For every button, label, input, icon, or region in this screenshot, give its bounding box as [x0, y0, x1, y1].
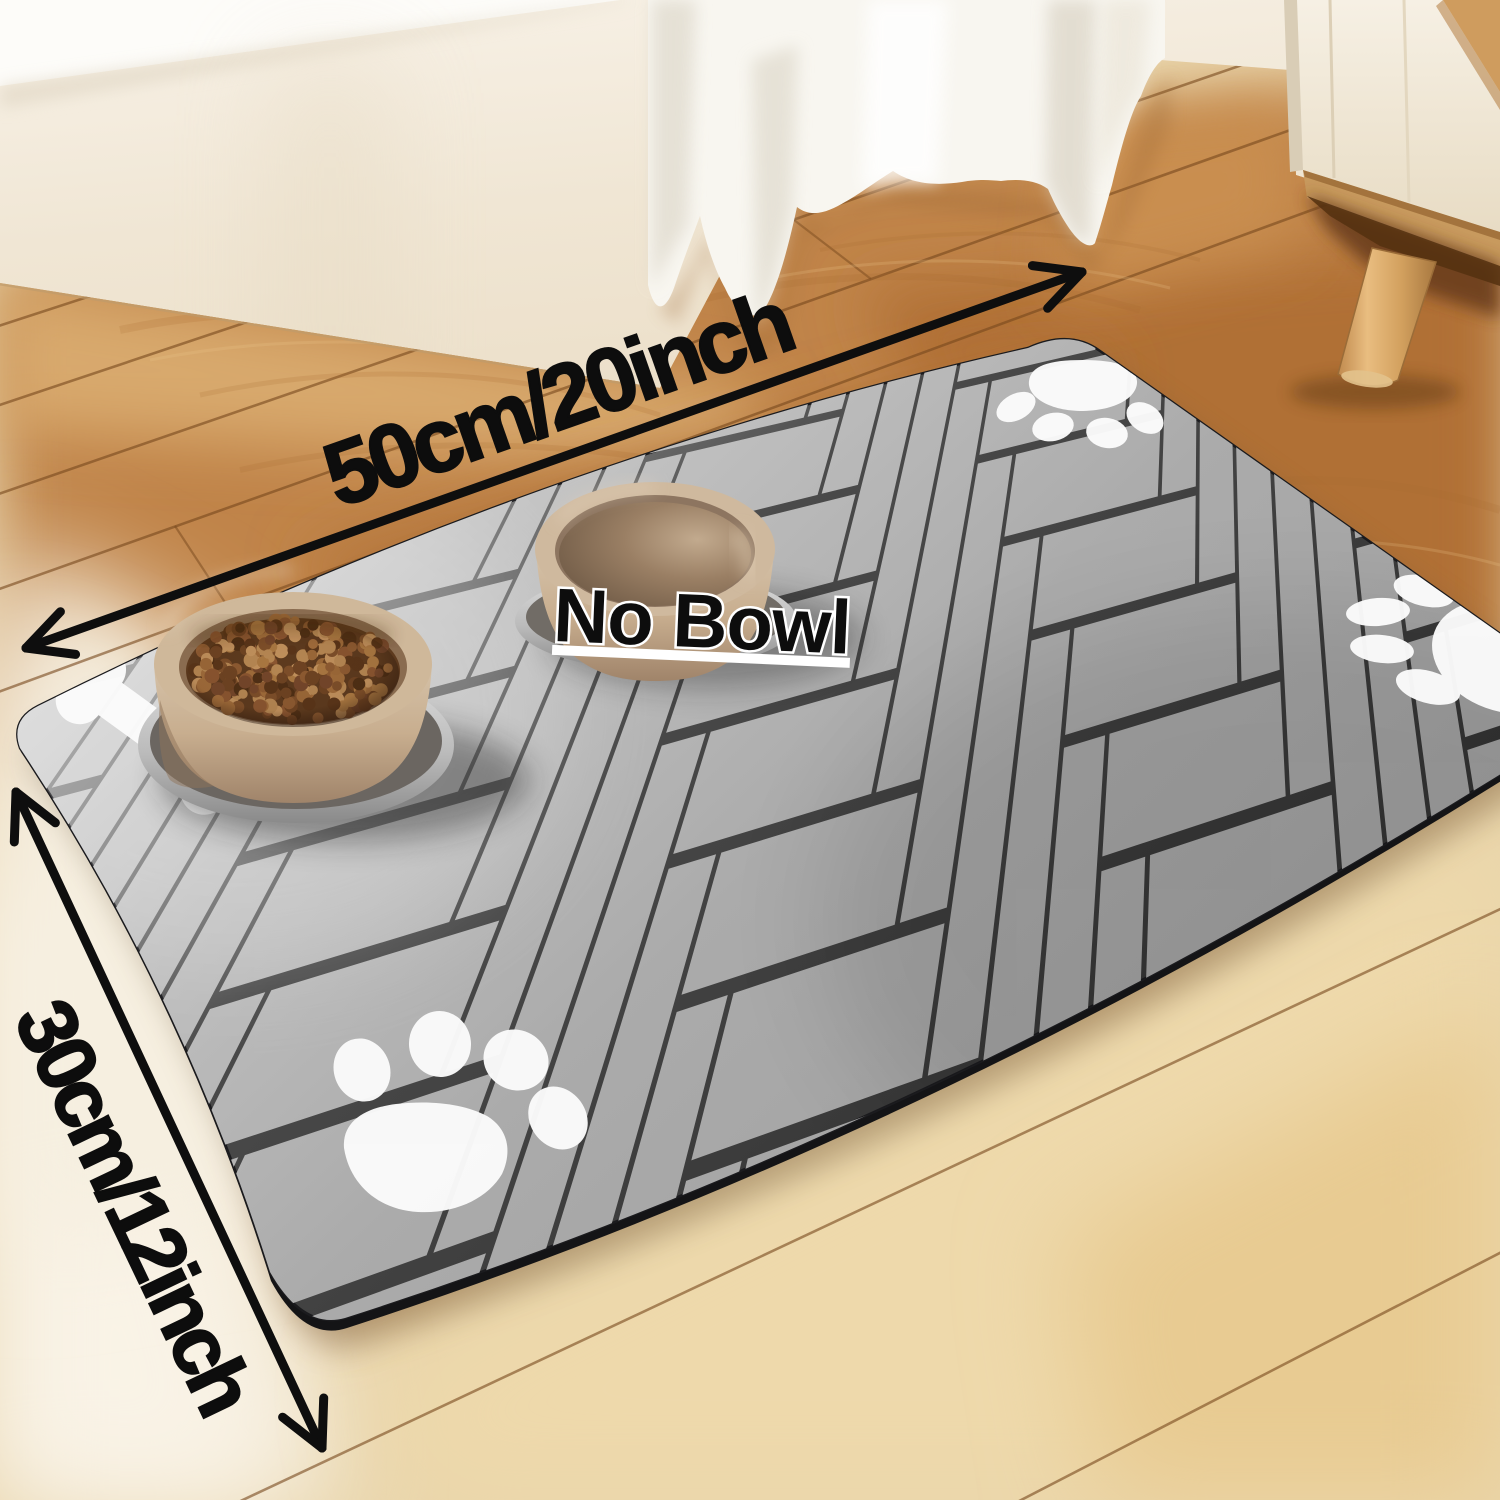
svg-text:No Bowl: No Bowl — [552, 573, 852, 671]
